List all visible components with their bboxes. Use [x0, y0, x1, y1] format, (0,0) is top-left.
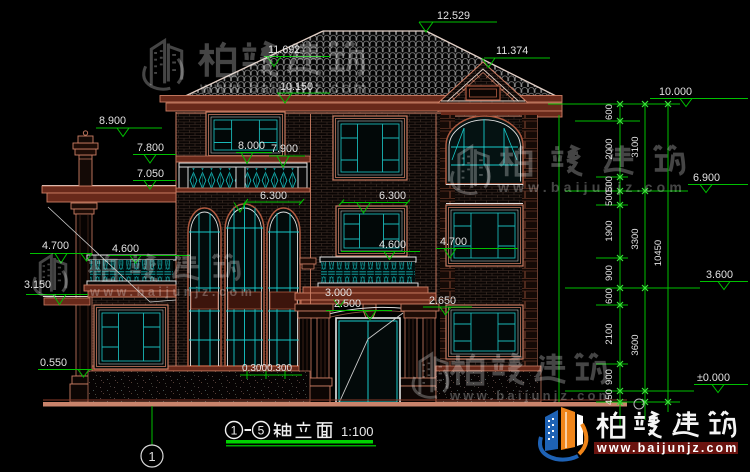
svg-text:www.baijunjz.com: www.baijunjz.com [89, 285, 255, 299]
svg-text:8.000: 8.000 [238, 140, 265, 152]
svg-text:3.600: 3.600 [706, 269, 733, 281]
svg-text:2.500: 2.500 [334, 298, 361, 310]
svg-text:1: 1 [148, 449, 155, 464]
svg-text:3600: 3600 [630, 334, 641, 355]
svg-text:0.550: 0.550 [40, 357, 67, 369]
svg-text:2.650: 2.650 [429, 295, 456, 307]
svg-text:3100: 3100 [630, 136, 641, 157]
svg-text:6.300: 6.300 [379, 190, 406, 202]
svg-text:900: 900 [604, 265, 615, 281]
svg-text:7.050: 7.050 [137, 168, 164, 180]
svg-text:6.300: 6.300 [260, 190, 287, 202]
svg-text:4.600: 4.600 [379, 239, 406, 251]
svg-text:600: 600 [604, 288, 615, 304]
svg-text:12.529: 12.529 [437, 10, 470, 22]
svg-text:10450: 10450 [653, 240, 664, 266]
svg-text:www.baijunjz.com: www.baijunjz.com [497, 179, 686, 195]
svg-text:1900: 1900 [604, 220, 615, 241]
svg-text:3300: 3300 [630, 228, 641, 249]
svg-text:7.800: 7.800 [137, 142, 164, 154]
svg-text:10.000: 10.000 [659, 86, 692, 98]
svg-text:5: 5 [258, 424, 265, 438]
svg-text:4.700: 4.700 [42, 240, 69, 252]
svg-text:8.900: 8.900 [99, 115, 126, 127]
svg-text:1:100: 1:100 [341, 424, 374, 439]
svg-text:4.700: 4.700 [440, 236, 467, 248]
svg-text:0.300: 0.300 [267, 363, 292, 374]
svg-text:www.baijunjz.com: www.baijunjz.com [596, 441, 738, 455]
svg-text:www.baijunjz.com: www.baijunjz.com [199, 80, 369, 97]
svg-text:±0.000: ±0.000 [697, 372, 730, 384]
svg-text:11.374: 11.374 [496, 45, 528, 57]
svg-text:3.150: 3.150 [24, 279, 51, 291]
svg-text:0.300: 0.300 [242, 363, 267, 374]
svg-text:www.baijunjz.com: www.baijunjz.com [449, 388, 613, 403]
svg-text:1: 1 [231, 424, 238, 438]
svg-text:2100: 2100 [604, 323, 615, 344]
svg-text:600: 600 [604, 104, 615, 120]
svg-text:7.900: 7.900 [271, 143, 298, 155]
svg-text:6.900: 6.900 [693, 172, 720, 184]
svg-text:4.600: 4.600 [112, 243, 139, 255]
